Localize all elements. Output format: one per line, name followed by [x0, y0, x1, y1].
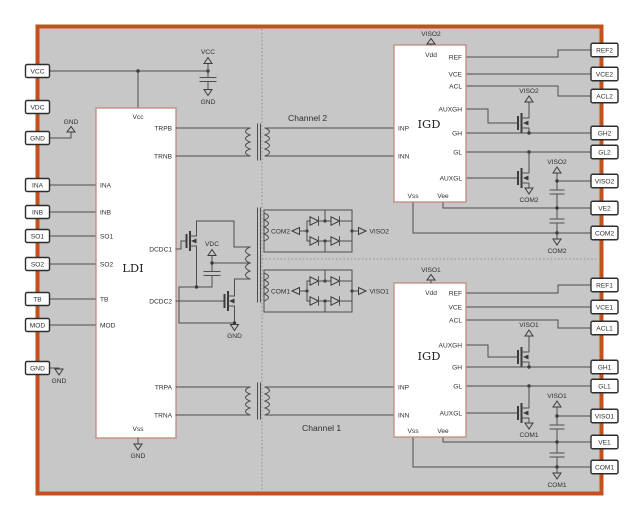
pin-label: VE2 [598, 205, 611, 212]
gnd-net-label: GND [64, 119, 79, 126]
pin-label: MOD [30, 322, 46, 329]
ldi-pin-trpb: TRPB [154, 125, 172, 132]
ldi-pin-inb: INB [100, 209, 112, 216]
viso2-net-label: VISO2 [421, 31, 441, 38]
igd2-vee-pin: Vee [437, 193, 449, 200]
com2-net-label: COM2 [271, 229, 290, 236]
pin-label: REF2 [596, 47, 613, 54]
ldi-pin-trna: TRNA [154, 412, 173, 419]
pin-label: VCE2 [596, 71, 614, 78]
viso1-net-label: VISO1 [547, 393, 567, 400]
channel1-label: Channel 1 [302, 423, 341, 433]
viso2-net-label: VISO2 [519, 88, 539, 95]
igd1-pin-inn: INN [398, 412, 410, 419]
channel2-label: Channel 2 [288, 113, 327, 123]
pin-label: COM1 [595, 464, 614, 471]
igd1-pin-auxgl: AUXGL [440, 410, 463, 417]
pin-label: VDC [31, 104, 45, 111]
pin-label: REF1 [596, 282, 613, 289]
igd2-pin-acl: ACL [449, 83, 462, 90]
igd2-pin-gh: GH [452, 130, 462, 137]
igd2-vss-pin: Vss [408, 193, 420, 200]
pin-label: GH2 [598, 130, 612, 137]
pin-label: GND [30, 135, 45, 142]
pin-label: ACL2 [596, 93, 613, 100]
ldi-pin-so1: SO1 [100, 233, 114, 240]
igd2-vdd-pin: Vdd [425, 52, 437, 59]
ldi-vss-pin: Vss [133, 426, 145, 433]
igd1-pin-gh: GH [452, 364, 462, 371]
pin-label: SO2 [31, 261, 45, 268]
com1-net-label: COM1 [547, 482, 566, 489]
viso2-net-label: VISO2 [547, 159, 567, 166]
ldi-pin-trpa: TRPA [155, 384, 173, 391]
pin-label: ACL1 [596, 325, 613, 332]
com1-net-label: COM1 [271, 289, 290, 296]
igd1-pin-auxgh: AUXGH [439, 342, 463, 349]
igd1-vee-pin: Vee [437, 428, 449, 435]
gnd-net-label: GND [52, 378, 67, 385]
vcc-net-label: VCC [201, 49, 215, 56]
ldi-pin-tb: TB [100, 296, 109, 303]
pin-label: GND [30, 365, 45, 372]
igd1-pin-gl: GL [453, 383, 462, 390]
viso1-net-label: VISO1 [421, 267, 441, 274]
gate-driver-block-diagram: VCC GND GND GND LDI Vcc Vss INA INB SO1 … [0, 0, 640, 523]
igd2-pin-inn: INN [398, 153, 410, 160]
pin-label: VE1 [598, 439, 611, 446]
ldi-pin-dcdc1: DCDC1 [149, 246, 172, 253]
ldi-pin-mod: MOD [100, 322, 116, 329]
igd1-pin-ref: REF [449, 290, 462, 297]
pin-label: GL1 [598, 383, 611, 390]
viso2-net-label: VISO2 [370, 229, 390, 236]
pin-label: TB [33, 296, 42, 303]
ldi-pin-trnb: TRNB [154, 153, 173, 160]
pin-label: INA [32, 182, 44, 189]
igd1-title: IGD [418, 349, 441, 363]
pin-label: COM2 [595, 230, 614, 237]
pin-label: VISO1 [595, 413, 615, 420]
pin-label: GH1 [598, 364, 612, 371]
com1-net-label: COM1 [519, 432, 538, 439]
pin-label: VCC [31, 68, 45, 75]
igd2-pin-inp: INP [398, 125, 410, 132]
ldi-title: LDI [122, 261, 143, 275]
schematic-page: VCC GND GND GND LDI Vcc Vss INA INB SO1 … [0, 0, 640, 523]
igd2-pin-gl: GL [453, 149, 462, 156]
igd1-pin-vce: VCE [448, 304, 462, 311]
igd2-pin-vce: VCE [448, 71, 462, 78]
pin-label: GL2 [598, 149, 611, 156]
pin-label: VCE1 [596, 304, 614, 311]
igd2-title: IGD [418, 117, 441, 131]
igd1-pin-acl: ACL [449, 317, 462, 324]
igd1-vss-pin: Vss [408, 428, 420, 435]
gnd-net-label: GND [201, 99, 216, 106]
pin-label: VISO2 [595, 178, 615, 185]
ldi-vcc-pin: Vcc [133, 114, 145, 121]
viso1-net-label: VISO1 [519, 322, 539, 329]
pin-label: INB [32, 209, 44, 216]
viso1-net-label: VISO1 [370, 289, 390, 296]
gnd-net-label: GND [227, 333, 242, 340]
com2-net-label: COM2 [519, 197, 538, 204]
igd1-vdd-pin: Vdd [425, 290, 437, 297]
pin-label: SO1 [31, 233, 45, 240]
igd2-pin-auxgl: AUXGL [440, 175, 463, 182]
com2-net-label: COM2 [547, 248, 566, 255]
ldi-pin-dcdc2: DCDC2 [149, 298, 172, 305]
gnd-net-label: GND [131, 453, 146, 460]
vdc-net-label: VDC [205, 241, 219, 248]
igd2-pin-ref: REF [449, 54, 462, 61]
igd2-pin-auxgh: AUXGH [439, 106, 463, 113]
ldi-pin-so2: SO2 [100, 261, 114, 268]
ldi-pin-ina: INA [100, 182, 112, 189]
igd1-pin-inp: INP [398, 384, 410, 391]
